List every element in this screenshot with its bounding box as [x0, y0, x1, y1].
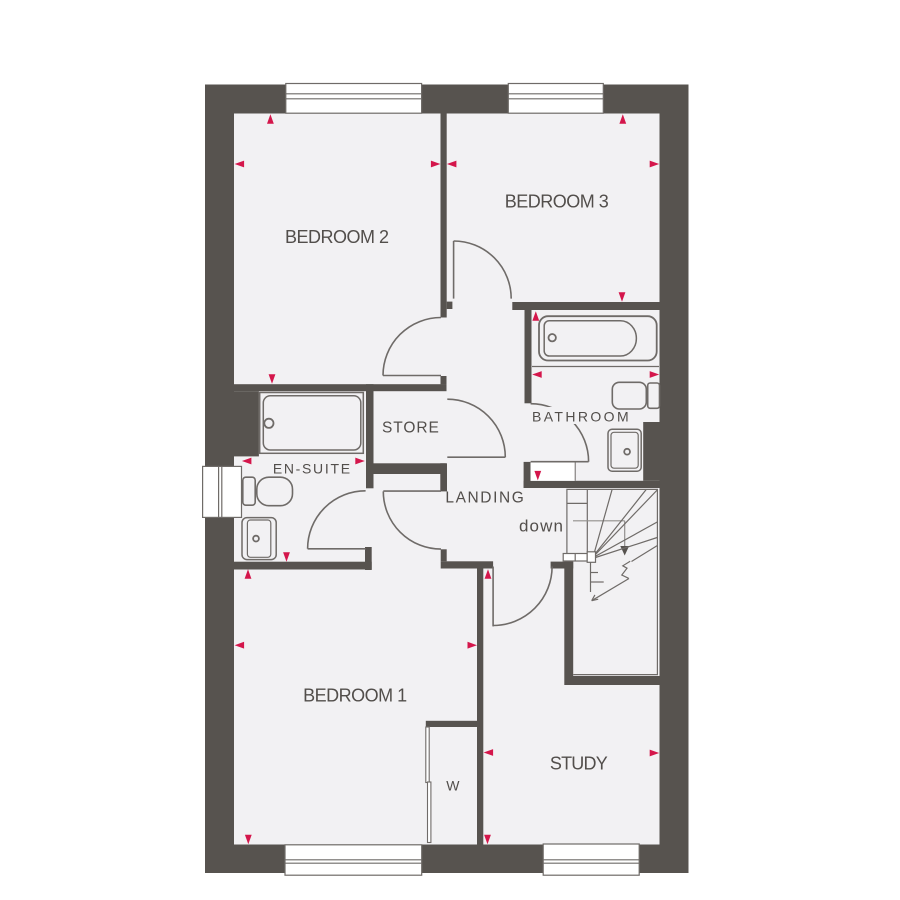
svg-text:BEDROOM 2: BEDROOM 2: [285, 227, 389, 247]
svg-text:STORE: STORE: [382, 419, 440, 436]
svg-text:down: down: [519, 516, 564, 535]
svg-text:LANDING: LANDING: [445, 490, 525, 507]
svg-text:EN-SUITE: EN-SUITE: [273, 461, 352, 477]
svg-text:STUDY: STUDY: [550, 753, 608, 773]
svg-text:BEDROOM 1: BEDROOM 1: [303, 685, 407, 705]
svg-text:W: W: [446, 777, 460, 793]
svg-text:BATHROOM: BATHROOM: [532, 409, 631, 425]
svg-text:BEDROOM 3: BEDROOM 3: [505, 191, 609, 211]
